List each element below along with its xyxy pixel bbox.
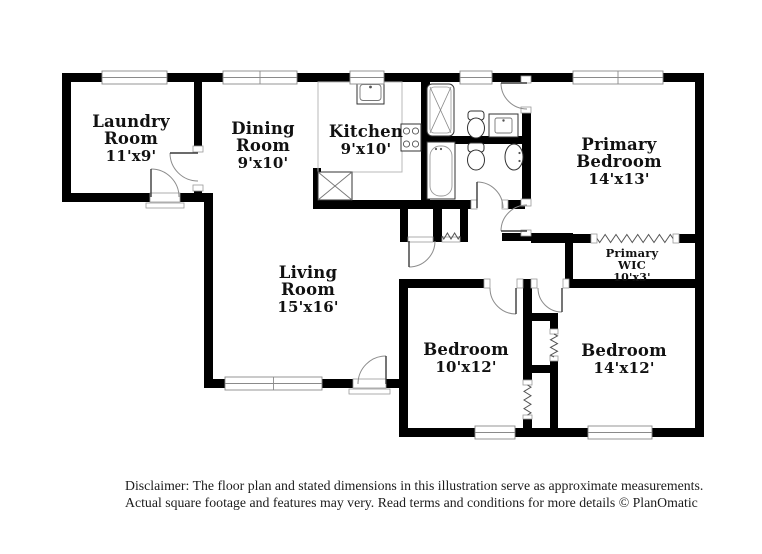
disclaimer-line-2: Actual square footage and features may v… xyxy=(125,495,698,510)
shower-icon xyxy=(427,84,454,136)
door-jamb xyxy=(349,389,390,394)
window xyxy=(225,377,322,390)
wall-segment xyxy=(322,379,353,388)
room-label-primary-bedroom: PrimaryBedroom14'x13' xyxy=(576,135,662,188)
room-dimension-text: 11'x9' xyxy=(106,147,157,165)
laundry-door xyxy=(170,153,198,181)
wall-segment xyxy=(399,279,490,288)
room-dimension-text: 10'x12' xyxy=(435,358,496,376)
toilet-icon-primary xyxy=(468,111,485,138)
wall-segment xyxy=(399,428,475,437)
closet-zigzag xyxy=(524,385,531,415)
door-jamb xyxy=(521,76,531,83)
room-name-text: Bedroom xyxy=(581,341,667,360)
door-jamb xyxy=(471,200,477,209)
wall-segment xyxy=(532,313,558,321)
room-name-text: Bedroom xyxy=(423,340,509,359)
door-jamb xyxy=(550,329,558,334)
door-jamb xyxy=(591,234,597,243)
wall-segment xyxy=(62,193,150,202)
wall-segment xyxy=(492,73,573,82)
bedroom-14x12-door xyxy=(538,288,562,312)
door-jamb xyxy=(146,203,184,208)
window xyxy=(475,426,515,439)
primary-bath-door xyxy=(501,83,527,109)
pedestal-sink-icon xyxy=(505,144,523,170)
room-label-bedroom-10x12: Bedroom10'x12' xyxy=(423,340,509,376)
room-label-dining-room: DiningRoom9'x10' xyxy=(231,119,295,172)
room-name-text: Bedroom xyxy=(576,152,662,171)
wall-segment xyxy=(652,428,704,437)
door-jamb xyxy=(517,279,523,288)
room-dimension-text: 9'x10' xyxy=(238,154,289,172)
door-jamb xyxy=(673,234,679,243)
wall-segment xyxy=(386,379,399,388)
pantry-icon xyxy=(318,172,352,200)
stove-icon xyxy=(401,124,421,151)
room-name-text: Room xyxy=(104,129,158,148)
room-dimension-text: 14'x13' xyxy=(588,170,649,188)
window xyxy=(102,71,167,84)
vanity-sink-icon xyxy=(489,114,518,137)
door-jamb xyxy=(563,279,569,288)
door-jamb xyxy=(521,107,531,113)
wall-segment xyxy=(433,209,442,242)
wall-segment xyxy=(531,234,597,243)
wall-segment xyxy=(204,199,213,388)
window xyxy=(460,71,492,84)
floor-plan-svg: LaundryRoom11'x9'DiningRoom9'x10'Kitchen… xyxy=(0,0,762,554)
window xyxy=(573,71,663,84)
floor-plan-image: LaundryRoom11'x9'DiningRoom9'x10'Kitchen… xyxy=(0,0,762,554)
wall-segment xyxy=(204,379,225,388)
wall-segment xyxy=(460,209,468,242)
door-jamb xyxy=(193,146,203,152)
hall-bath-door xyxy=(477,182,503,208)
room-dimension-text: 10'x3' xyxy=(613,271,650,284)
wall-segment xyxy=(297,73,350,82)
room-label-laundry-room: LaundryRoom11'x9' xyxy=(92,112,170,165)
room-name-text: Room xyxy=(236,136,290,155)
room-dimension-text: 9'x10' xyxy=(341,140,392,158)
bedroom-10x12-door xyxy=(490,288,516,314)
window xyxy=(223,71,297,84)
window xyxy=(350,71,384,84)
door-jamb xyxy=(523,415,532,419)
wall-segment xyxy=(313,200,477,209)
disclaimer-line-1: Disclaimer: The floor plan and stated di… xyxy=(125,478,703,493)
door-jamb xyxy=(484,279,490,288)
door-jamb xyxy=(150,193,180,202)
room-name-text: Kitchen xyxy=(329,122,403,141)
room-label-kitchen: Kitchen9'x10' xyxy=(329,122,403,158)
wall-segment xyxy=(194,73,202,152)
wall-segment xyxy=(523,288,532,385)
closet-zigzag xyxy=(551,334,558,357)
wall-segment xyxy=(695,73,704,437)
toilet-icon-hall xyxy=(468,143,485,170)
room-label-bedroom-14x12: Bedroom14'x12' xyxy=(581,341,667,377)
closet-zigzag xyxy=(442,233,460,239)
room-label-living-room: LivingRoom15'x16' xyxy=(277,263,338,316)
door-jamb xyxy=(531,279,537,288)
wall-segment xyxy=(399,279,408,437)
hall-closet-door xyxy=(409,241,435,267)
door-jamb xyxy=(193,185,203,191)
room-name-text: WIC xyxy=(617,258,646,272)
room-dimension-text: 14'x12' xyxy=(593,359,654,377)
wall-segment xyxy=(62,73,71,202)
window xyxy=(588,426,652,439)
door-jamb xyxy=(408,237,433,242)
wall-segment xyxy=(550,360,558,437)
door-jamb xyxy=(523,380,532,385)
closet-zigzag xyxy=(597,235,673,243)
room-name-text: Room xyxy=(281,280,335,299)
room-labels: LaundryRoom11'x9'DiningRoom9'x10'Kitchen… xyxy=(92,112,667,377)
room-dimension-text: 15'x16' xyxy=(277,298,338,316)
room-label-primary-wic: PrimaryWIC10'x3' xyxy=(606,246,659,284)
bathtub-icon xyxy=(427,142,455,199)
wall-segment xyxy=(523,418,532,437)
